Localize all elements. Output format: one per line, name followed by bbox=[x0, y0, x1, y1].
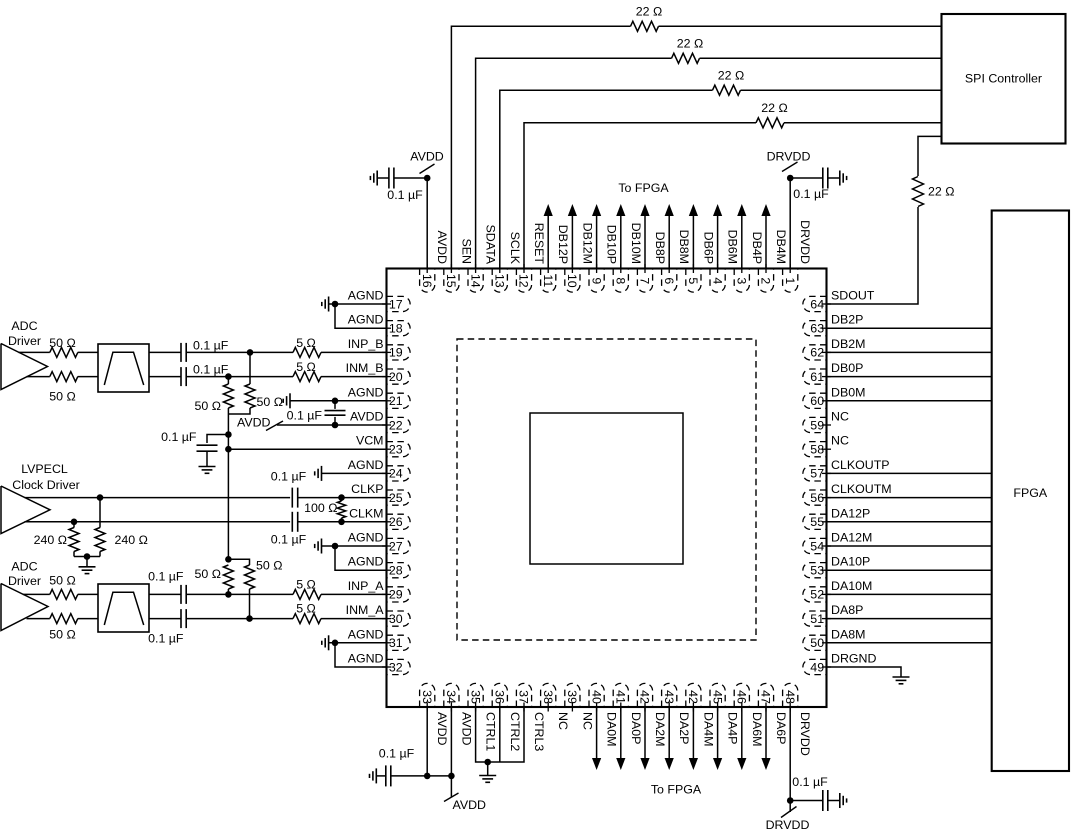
svg-text:Driver: Driver bbox=[8, 334, 41, 348]
svg-text:AGND: AGND bbox=[348, 289, 384, 303]
svg-text:0.1 µF: 0.1 µF bbox=[148, 570, 184, 584]
svg-text:50: 50 bbox=[810, 636, 824, 650]
svg-text:AGND: AGND bbox=[348, 555, 384, 569]
svg-text:13: 13 bbox=[493, 274, 507, 288]
svg-text:DA10P: DA10P bbox=[831, 555, 870, 569]
svg-text:DB10M: DB10M bbox=[629, 223, 643, 264]
svg-text:CLKOUTM: CLKOUTM bbox=[831, 482, 892, 496]
svg-text:INP_A: INP_A bbox=[348, 579, 385, 593]
svg-text:INP_B: INP_B bbox=[348, 337, 384, 351]
svg-text:0.1 µF: 0.1 µF bbox=[193, 363, 229, 377]
svg-text:63: 63 bbox=[810, 322, 824, 336]
svg-text:ADC: ADC bbox=[11, 319, 37, 333]
svg-text:22 Ω: 22 Ω bbox=[636, 5, 663, 19]
svg-text:RESET: RESET bbox=[532, 223, 546, 265]
svg-text:AGND: AGND bbox=[348, 313, 384, 327]
svg-text:50 Ω: 50 Ω bbox=[49, 628, 76, 642]
svg-text:DA0P: DA0P bbox=[629, 712, 643, 744]
svg-text:AVDD: AVDD bbox=[435, 712, 449, 746]
svg-text:AVDD: AVDD bbox=[459, 712, 473, 746]
svg-text:DA4M: DA4M bbox=[701, 712, 715, 746]
svg-text:16: 16 bbox=[420, 274, 434, 288]
svg-text:SEN: SEN bbox=[459, 239, 473, 264]
svg-text:FPGA: FPGA bbox=[1013, 486, 1047, 500]
svg-text:18: 18 bbox=[389, 322, 403, 336]
svg-text:1: 1 bbox=[783, 277, 797, 284]
svg-text:55: 55 bbox=[810, 515, 824, 529]
svg-text:DRVDD: DRVDD bbox=[767, 150, 811, 164]
svg-text:DB6P: DB6P bbox=[701, 232, 715, 264]
svg-text:48: 48 bbox=[783, 690, 797, 704]
svg-text:28: 28 bbox=[389, 564, 403, 578]
svg-text:ADC: ADC bbox=[11, 560, 37, 574]
svg-text:61: 61 bbox=[810, 370, 824, 384]
svg-text:100 Ω: 100 Ω bbox=[304, 501, 337, 515]
svg-text:VCM: VCM bbox=[356, 434, 384, 448]
svg-text:DA2P: DA2P bbox=[677, 712, 691, 744]
svg-text:NC: NC bbox=[580, 712, 594, 730]
svg-text:37: 37 bbox=[517, 690, 531, 704]
svg-text:DA4P: DA4P bbox=[726, 712, 740, 744]
svg-text:14: 14 bbox=[468, 274, 482, 288]
svg-text:DB0M: DB0M bbox=[831, 385, 865, 399]
svg-text:AVDD: AVDD bbox=[435, 230, 449, 264]
svg-text:AGND: AGND bbox=[348, 531, 384, 545]
svg-text:11: 11 bbox=[541, 274, 555, 287]
svg-text:AVDD: AVDD bbox=[237, 416, 271, 430]
svg-text:5 Ω: 5 Ω bbox=[296, 578, 316, 592]
svg-text:AGND: AGND bbox=[348, 627, 384, 641]
svg-text:54: 54 bbox=[810, 539, 824, 553]
svg-text:NC: NC bbox=[556, 712, 570, 730]
svg-text:25: 25 bbox=[389, 491, 403, 505]
svg-text:SDOUT: SDOUT bbox=[831, 289, 875, 303]
svg-text:DA0M: DA0M bbox=[605, 712, 619, 746]
svg-text:240 Ω: 240 Ω bbox=[34, 533, 67, 547]
svg-text:50 Ω: 50 Ω bbox=[195, 567, 222, 581]
svg-text:32: 32 bbox=[389, 660, 403, 674]
svg-text:43: 43 bbox=[662, 690, 676, 704]
svg-text:20: 20 bbox=[389, 370, 403, 384]
svg-text:INM_A: INM_A bbox=[346, 603, 385, 617]
svg-text:INM_B: INM_B bbox=[346, 361, 384, 375]
svg-text:30: 30 bbox=[389, 612, 403, 626]
svg-text:DRVDD: DRVDD bbox=[798, 220, 812, 264]
svg-text:DB6M: DB6M bbox=[726, 230, 740, 264]
svg-text:5: 5 bbox=[686, 277, 700, 284]
svg-text:0.1 µF: 0.1 µF bbox=[792, 775, 828, 789]
svg-text:46: 46 bbox=[735, 690, 749, 704]
svg-text:SPI Controller: SPI Controller bbox=[965, 72, 1042, 86]
svg-text:DA12M: DA12M bbox=[831, 531, 872, 545]
svg-text:AGND: AGND bbox=[348, 652, 384, 666]
svg-text:CTRL2: CTRL2 bbox=[508, 712, 522, 751]
svg-text:NC: NC bbox=[831, 410, 849, 424]
svg-text:19: 19 bbox=[389, 346, 403, 360]
svg-text:DB2M: DB2M bbox=[831, 337, 865, 351]
svg-text:DA10M: DA10M bbox=[831, 579, 872, 593]
svg-text:DB4M: DB4M bbox=[774, 230, 788, 264]
svg-text:23: 23 bbox=[389, 443, 403, 457]
svg-text:9: 9 bbox=[589, 277, 603, 284]
svg-text:DRGND: DRGND bbox=[831, 652, 876, 666]
svg-text:47: 47 bbox=[759, 690, 773, 704]
svg-text:DB2P: DB2P bbox=[831, 313, 863, 327]
svg-text:5 Ω: 5 Ω bbox=[296, 336, 316, 350]
svg-text:24: 24 bbox=[389, 467, 403, 481]
svg-text:10: 10 bbox=[565, 274, 579, 288]
svg-text:240 Ω: 240 Ω bbox=[115, 533, 148, 547]
svg-text:2: 2 bbox=[759, 277, 773, 284]
svg-text:0.1 µF: 0.1 µF bbox=[271, 532, 307, 546]
svg-text:DB8M: DB8M bbox=[677, 230, 691, 264]
svg-text:0.1 µF: 0.1 µF bbox=[387, 188, 423, 202]
svg-text:5 Ω: 5 Ω bbox=[296, 602, 316, 616]
svg-text:CLKP: CLKP bbox=[351, 482, 383, 496]
svg-text:AVDD: AVDD bbox=[453, 798, 487, 812]
svg-text:56: 56 bbox=[810, 491, 824, 505]
svg-text:41: 41 bbox=[614, 690, 628, 704]
svg-text:36: 36 bbox=[493, 690, 507, 704]
svg-text:Clock Driver: Clock Driver bbox=[12, 478, 79, 492]
svg-text:0.1 µF: 0.1 µF bbox=[287, 409, 323, 423]
svg-text:AGND: AGND bbox=[348, 385, 384, 399]
svg-text:0.1 µF: 0.1 µF bbox=[148, 632, 184, 646]
svg-text:6: 6 bbox=[662, 277, 676, 284]
svg-text:DRVDD: DRVDD bbox=[798, 712, 812, 756]
svg-text:DA6P: DA6P bbox=[774, 712, 788, 744]
svg-text:50 Ω: 50 Ω bbox=[49, 573, 76, 587]
svg-text:50 Ω: 50 Ω bbox=[195, 399, 222, 413]
svg-text:NC: NC bbox=[831, 434, 849, 448]
svg-text:62: 62 bbox=[810, 346, 824, 360]
svg-text:To FPGA: To FPGA bbox=[651, 783, 702, 797]
svg-text:12: 12 bbox=[517, 274, 531, 288]
svg-text:DA8M: DA8M bbox=[831, 627, 865, 641]
svg-text:CLKM: CLKM bbox=[349, 506, 383, 520]
svg-text:0.1 µF: 0.1 µF bbox=[193, 338, 229, 352]
svg-text:DA6M: DA6M bbox=[750, 712, 764, 746]
svg-text:27: 27 bbox=[389, 539, 403, 553]
svg-text:58: 58 bbox=[810, 443, 824, 457]
svg-text:DB0P: DB0P bbox=[831, 361, 863, 375]
svg-text:Driver: Driver bbox=[8, 574, 41, 588]
svg-text:DB10P: DB10P bbox=[605, 225, 619, 264]
svg-text:42: 42 bbox=[686, 690, 700, 704]
svg-text:AVDD: AVDD bbox=[350, 410, 384, 424]
svg-text:0.1 µF: 0.1 µF bbox=[379, 747, 415, 761]
svg-text:15: 15 bbox=[444, 274, 458, 288]
svg-text:DA8P: DA8P bbox=[831, 603, 863, 617]
svg-text:50 Ω: 50 Ω bbox=[257, 395, 284, 409]
svg-text:64: 64 bbox=[810, 297, 824, 311]
svg-text:CTRL1: CTRL1 bbox=[484, 712, 498, 751]
svg-text:52: 52 bbox=[810, 588, 824, 602]
svg-text:50 Ω: 50 Ω bbox=[49, 390, 76, 404]
svg-text:3: 3 bbox=[735, 277, 749, 284]
svg-text:AGND: AGND bbox=[348, 458, 384, 472]
svg-text:39: 39 bbox=[565, 690, 579, 704]
svg-text:33: 33 bbox=[420, 690, 434, 704]
svg-text:DB4P: DB4P bbox=[750, 232, 764, 264]
svg-text:50 Ω: 50 Ω bbox=[256, 559, 283, 573]
svg-text:50 Ω: 50 Ω bbox=[49, 336, 76, 350]
svg-text:LVPECL: LVPECL bbox=[21, 462, 68, 476]
svg-text:59: 59 bbox=[810, 418, 824, 432]
svg-text:34: 34 bbox=[444, 690, 458, 704]
svg-text:22 Ω: 22 Ω bbox=[718, 68, 745, 82]
svg-text:40: 40 bbox=[589, 690, 603, 704]
svg-text:8: 8 bbox=[614, 277, 628, 284]
svg-text:DA12P: DA12P bbox=[831, 506, 870, 520]
svg-text:57: 57 bbox=[810, 467, 824, 481]
svg-text:35: 35 bbox=[468, 690, 482, 704]
svg-text:DB12M: DB12M bbox=[580, 223, 594, 264]
svg-text:22 Ω: 22 Ω bbox=[761, 101, 788, 115]
svg-text:To FPGA: To FPGA bbox=[618, 181, 669, 195]
svg-text:DB12P: DB12P bbox=[556, 225, 570, 264]
svg-text:42: 42 bbox=[638, 690, 652, 704]
svg-text:CTRL3: CTRL3 bbox=[532, 712, 546, 751]
svg-text:DA2M: DA2M bbox=[653, 712, 667, 746]
svg-text:31: 31 bbox=[389, 636, 403, 650]
svg-text:26: 26 bbox=[389, 515, 403, 529]
svg-text:45: 45 bbox=[710, 690, 724, 704]
svg-text:5 Ω: 5 Ω bbox=[296, 360, 316, 374]
svg-text:22 Ω: 22 Ω bbox=[928, 184, 955, 198]
svg-text:4: 4 bbox=[710, 277, 724, 284]
svg-text:38: 38 bbox=[541, 690, 555, 704]
svg-text:17: 17 bbox=[389, 297, 403, 311]
svg-text:53: 53 bbox=[810, 564, 824, 578]
svg-text:29: 29 bbox=[389, 588, 403, 602]
svg-text:7: 7 bbox=[638, 277, 652, 284]
svg-text:60: 60 bbox=[810, 394, 824, 408]
svg-text:22 Ω: 22 Ω bbox=[677, 37, 704, 51]
svg-text:SCLK: SCLK bbox=[508, 232, 522, 265]
svg-text:SDATA: SDATA bbox=[484, 225, 498, 265]
svg-text:0.1 µF: 0.1 µF bbox=[161, 430, 197, 444]
svg-text:DRVDD: DRVDD bbox=[766, 818, 810, 832]
svg-text:22: 22 bbox=[389, 418, 403, 432]
svg-text:DB8P: DB8P bbox=[653, 232, 667, 264]
svg-text:0.1 µF: 0.1 µF bbox=[271, 469, 307, 483]
svg-text:49: 49 bbox=[810, 660, 824, 674]
svg-text:CLKOUTP: CLKOUTP bbox=[831, 458, 890, 472]
svg-text:0.1 µF: 0.1 µF bbox=[793, 187, 829, 201]
svg-text:51: 51 bbox=[810, 612, 824, 626]
svg-text:AVDD: AVDD bbox=[410, 150, 444, 164]
svg-text:21: 21 bbox=[389, 394, 403, 408]
